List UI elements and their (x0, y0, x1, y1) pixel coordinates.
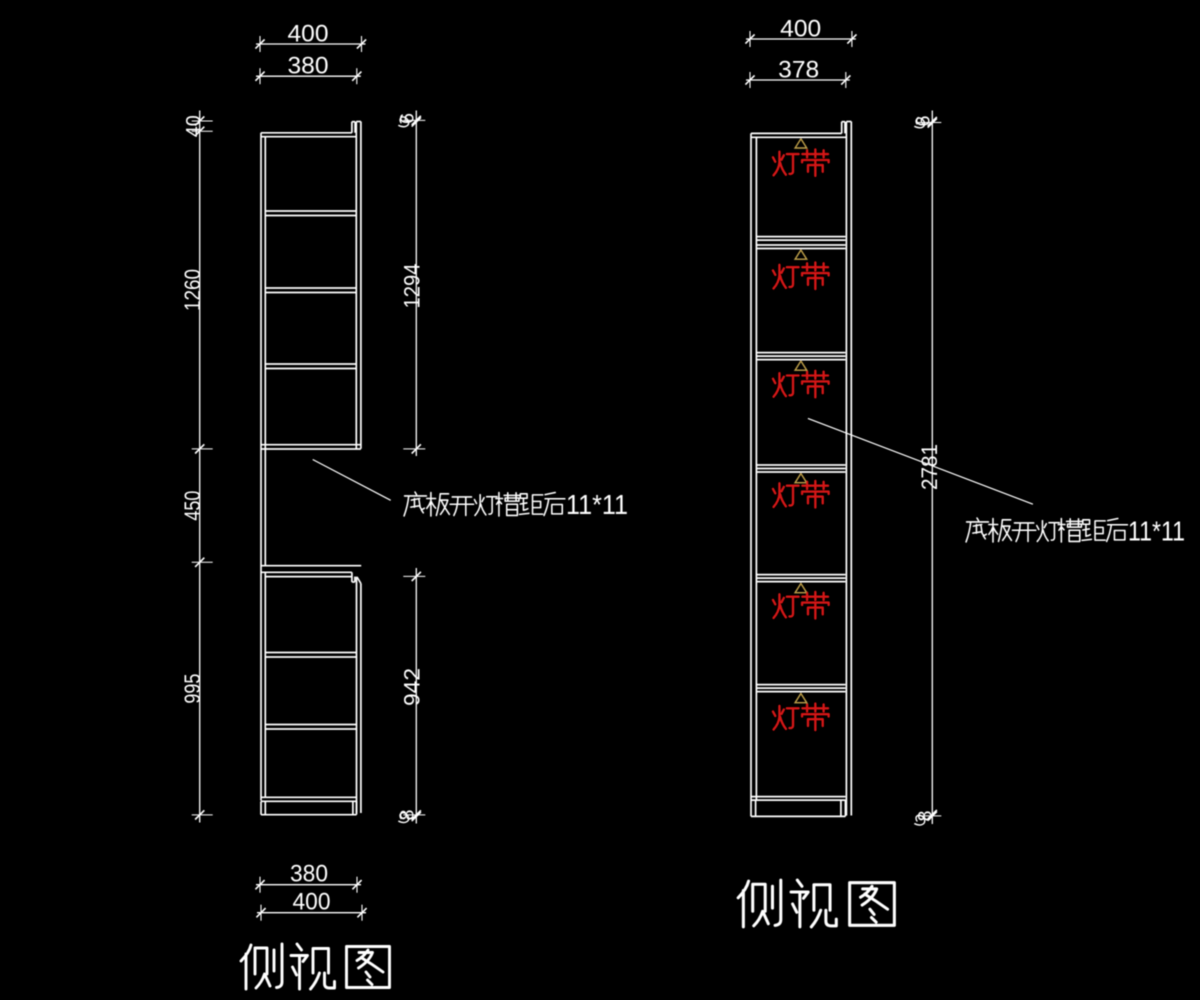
svg-text:378: 378 (778, 57, 819, 84)
svg-text:400: 400 (293, 889, 331, 916)
svg-text:40: 40 (183, 115, 205, 137)
svg-text:6: 6 (913, 116, 934, 127)
svg-text:8: 8 (397, 810, 418, 821)
svg-text:380: 380 (290, 861, 328, 888)
svg-text:400: 400 (780, 16, 821, 43)
svg-text:1260: 1260 (180, 269, 205, 311)
svg-text:6: 6 (397, 113, 418, 124)
svg-text:942: 942 (399, 668, 424, 706)
svg-text:11*11: 11*11 (566, 489, 628, 520)
svg-text:380: 380 (288, 53, 329, 80)
svg-text:450: 450 (180, 491, 205, 521)
svg-text:11*11: 11*11 (1128, 516, 1185, 547)
svg-text:2781: 2781 (917, 444, 942, 490)
svg-text:1294: 1294 (399, 264, 424, 309)
svg-text:8: 8 (915, 811, 936, 822)
svg-text:995: 995 (180, 674, 205, 704)
svg-text:400: 400 (288, 21, 329, 48)
